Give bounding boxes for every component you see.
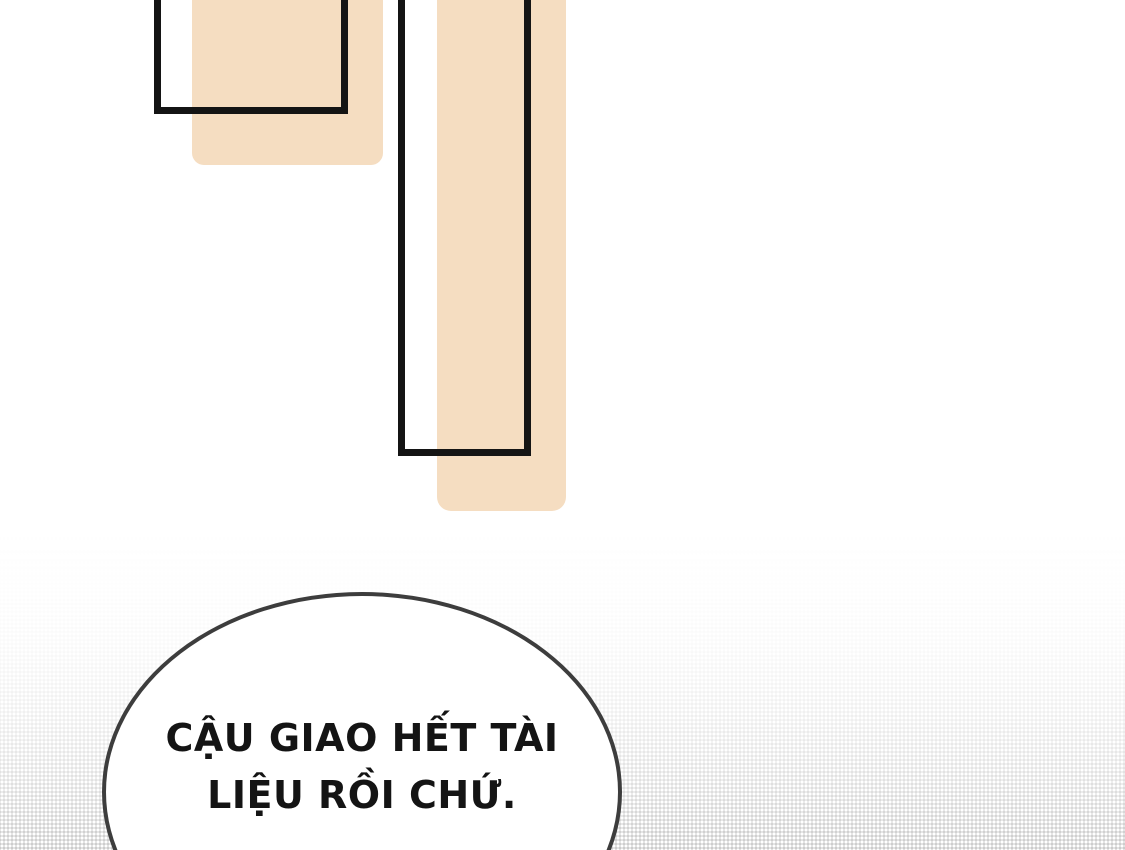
speech-line-1: CẬU GIAO HẾT TÀI (165, 710, 558, 767)
comic-panel: CẬU GIAO HẾT TÀI LIỆU RỒI CHỨ. (0, 0, 1125, 850)
speech-bubble-text: CẬU GIAO HẾT TÀI LIỆU RỒI CHỨ. (165, 710, 558, 824)
black-frame-column (398, 0, 531, 456)
black-frame-top-left (154, 0, 348, 114)
speech-line-2: LIỆU RỒI CHỨ. (165, 767, 558, 824)
